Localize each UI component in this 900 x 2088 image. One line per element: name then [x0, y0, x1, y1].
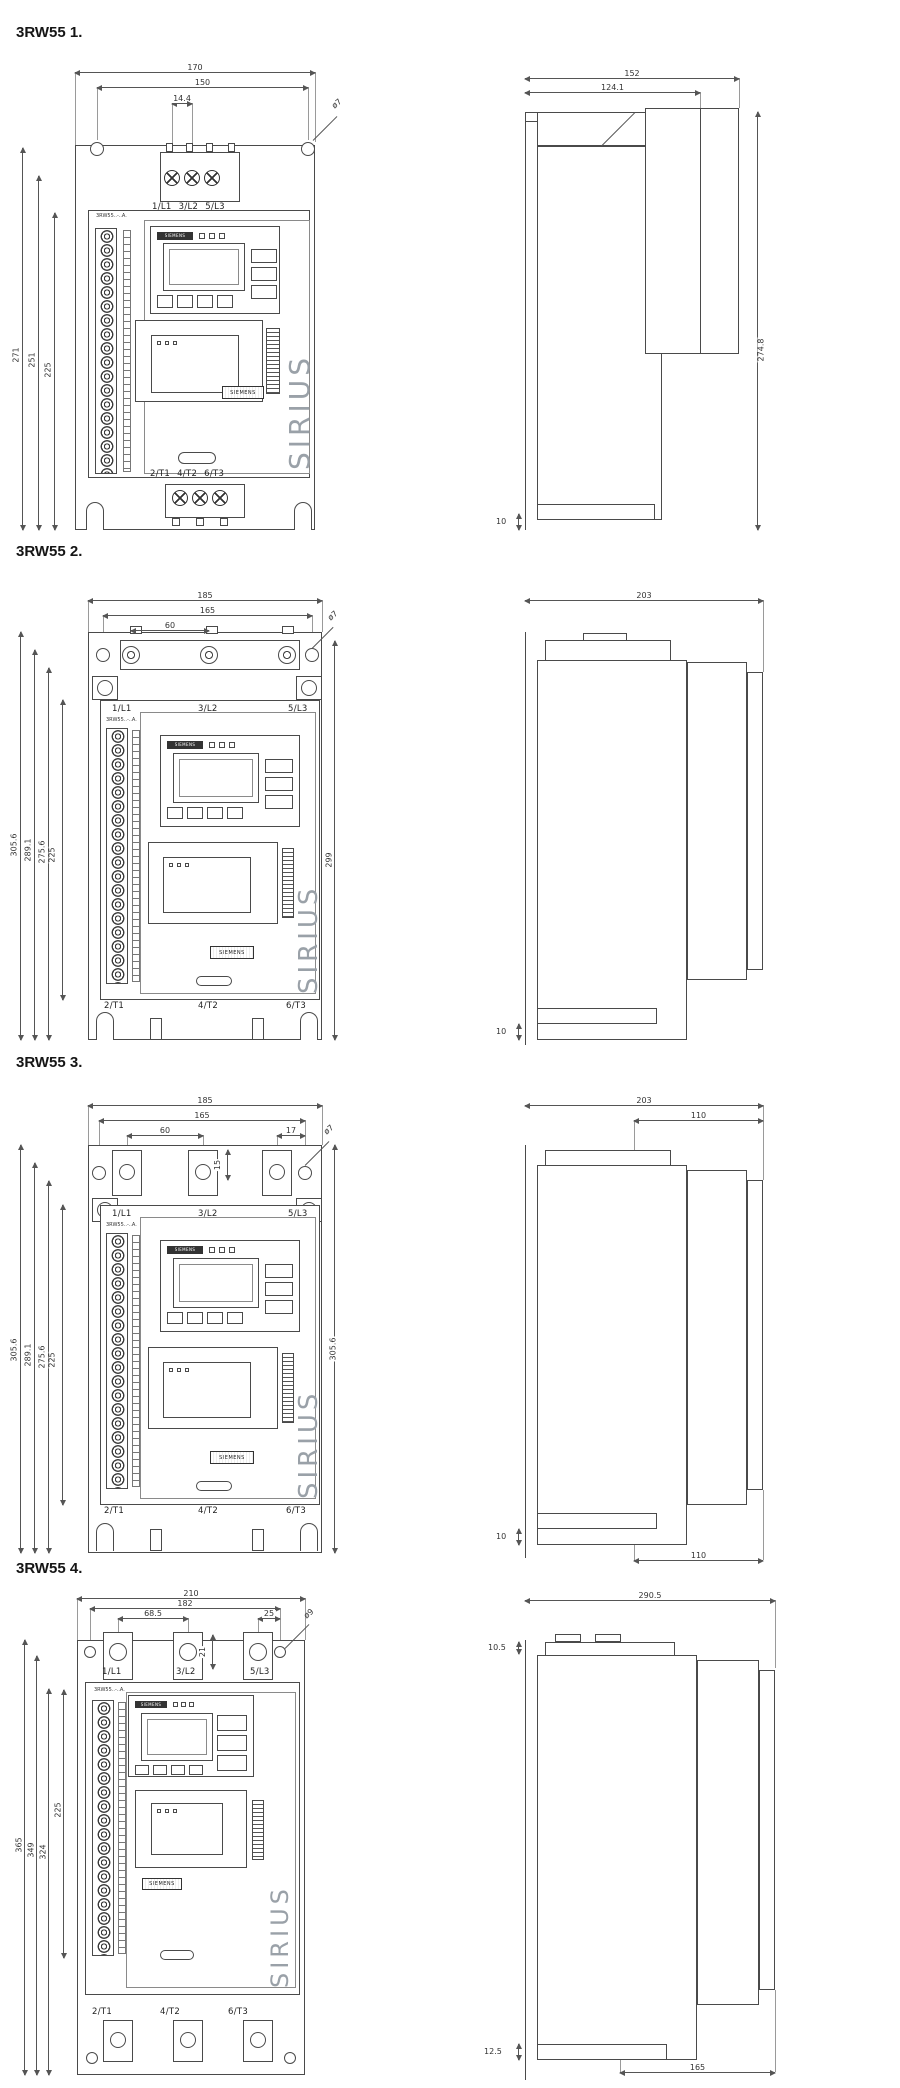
- mounting-plane-line: [525, 1640, 526, 2080]
- drawing-4: 3RW55 4. 1/L1 3/L2 5/L3 3RW55..-..A. SIE…: [0, 0, 900, 2088]
- dim-foot-height: [518, 2044, 519, 2060]
- extension-line: [775, 1990, 776, 2072]
- drawing-4-side-view: 290.5 10.5 12.5 165: [0, 0, 900, 2088]
- top-cover: [545, 1642, 675, 1656]
- dim-top-lip: [518, 1642, 519, 1654]
- top-cover-hump: [595, 1634, 621, 1642]
- extension-line: [775, 1600, 776, 1668]
- bottom-foot: [537, 2044, 667, 2060]
- dimension-drawings-page: 3RW55 1. 1/L1 3/L2 5/L3 3RW55..-..A.: [0, 0, 900, 2088]
- side-body: [537, 1655, 697, 2060]
- front-pod: [697, 1660, 759, 2005]
- front-layer: [759, 1670, 775, 1990]
- dim-bottom-front: 165: [620, 2072, 775, 2073]
- top-cover-hump: [555, 1634, 581, 1642]
- dim-depth-total: 290.5: [525, 1600, 775, 1601]
